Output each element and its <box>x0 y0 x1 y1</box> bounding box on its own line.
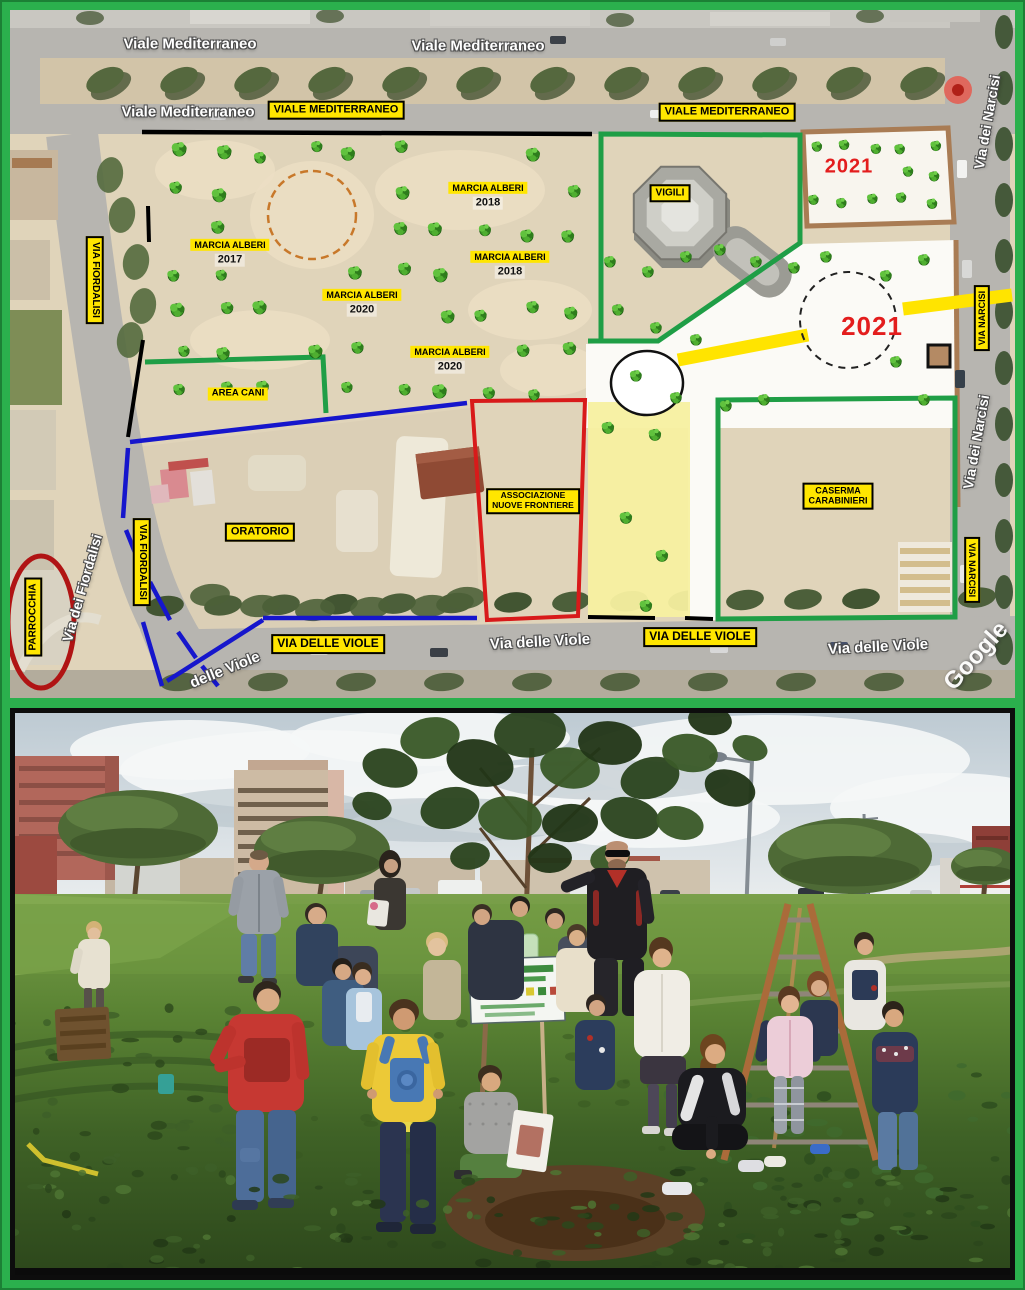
sign-marcia-alberi-3-year: 2018 <box>495 266 525 279</box>
sign-marcia-alberi-3: MARCIA ALBERI <box>470 251 549 263</box>
sign-via-fiordalisi-1: VIA FIORDALISI <box>86 236 104 324</box>
sign-vigili: VIGILI <box>650 184 691 202</box>
street-viale-mediterraneo-1: Viale Mediterraneo <box>123 35 256 52</box>
street-via-dei-fiordalisi: Via dei Fiordalisi <box>59 532 105 643</box>
tree-planting-photo <box>10 708 1015 1280</box>
sign-caserma-line1: CASERMA <box>808 486 867 496</box>
sign-caserma: CASERMACARABINIERI <box>802 483 873 510</box>
sign-oratorio: ORATORIO <box>225 523 295 542</box>
sign-marcia-alberi-5-year: 2020 <box>435 361 465 374</box>
sign-via-narcisi-1: VIA NARCISI <box>974 285 990 351</box>
sign-marcia-alberi-2-year: 2017 <box>215 254 245 267</box>
sign-marcia-alberi-1-year: 2018 <box>473 197 503 210</box>
sign-caserma-line2: CARABINIERI <box>808 496 867 506</box>
street-via-dei-narcisi-2: Via dei Narcisi <box>960 394 992 491</box>
photo-graphics <box>10 708 1015 1280</box>
map-labels-layer: Viale MediterraneoViale MediterraneoVial… <box>10 10 1015 698</box>
year-2021-center: 2021 <box>841 312 903 342</box>
sign-associazione: ASSOCIAZIONENUOVE FRONTIERE <box>486 488 580 514</box>
street-via-dei-narcisi-1: Via dei Narcisi <box>971 74 1003 171</box>
sign-viale-mediterraneo-1: VIALE MEDITERRANEO <box>268 101 405 120</box>
sign-via-narcisi-2: VIA NARCISI <box>964 537 980 603</box>
flyer-page: Viale MediterraneoViale MediterraneoVial… <box>0 0 1025 1290</box>
sign-marcia-alberi-4-year: 2020 <box>347 304 377 317</box>
park-satellite-map: Viale MediterraneoViale MediterraneoVial… <box>10 10 1015 698</box>
google-watermark: Google <box>938 616 1014 696</box>
street-via-delle-viole-1: Via delle Viole <box>489 631 590 653</box>
sign-associazione-line2: NUOVE FRONTIERE <box>492 501 574 511</box>
sign-marcia-alberi-5: MARCIA ALBERI <box>410 346 489 358</box>
sign-via-fiordalisi-2: VIA FIORDALISI <box>133 518 151 606</box>
sign-via-delle-viole-1: VIA DELLE VIOLE <box>271 634 385 654</box>
year-2021-north: 2021 <box>825 156 874 179</box>
sign-parrocchia: PARROCCHIA <box>24 577 42 656</box>
street-via-delle-viole-2: Via delle Viole <box>827 636 928 658</box>
sign-viale-mediterraneo-2: VIALE MEDITERRANEO <box>659 103 796 122</box>
street-viale-mediterraneo-2: Viale Mediterraneo <box>411 37 544 54</box>
sign-marcia-alberi-4: MARCIA ALBERI <box>322 289 401 301</box>
sign-marcia-alberi-1: MARCIA ALBERI <box>448 182 527 194</box>
street-viale-mediterraneo-3: Viale Mediterraneo <box>121 103 254 120</box>
sign-marcia-alberi-2: MARCIA ALBERI <box>190 239 269 251</box>
street-delle-viole: delle Viole <box>187 648 262 692</box>
sign-via-delle-viole-2: VIA DELLE VIOLE <box>643 627 757 647</box>
sign-area-cani: AREA CANI <box>208 388 268 401</box>
